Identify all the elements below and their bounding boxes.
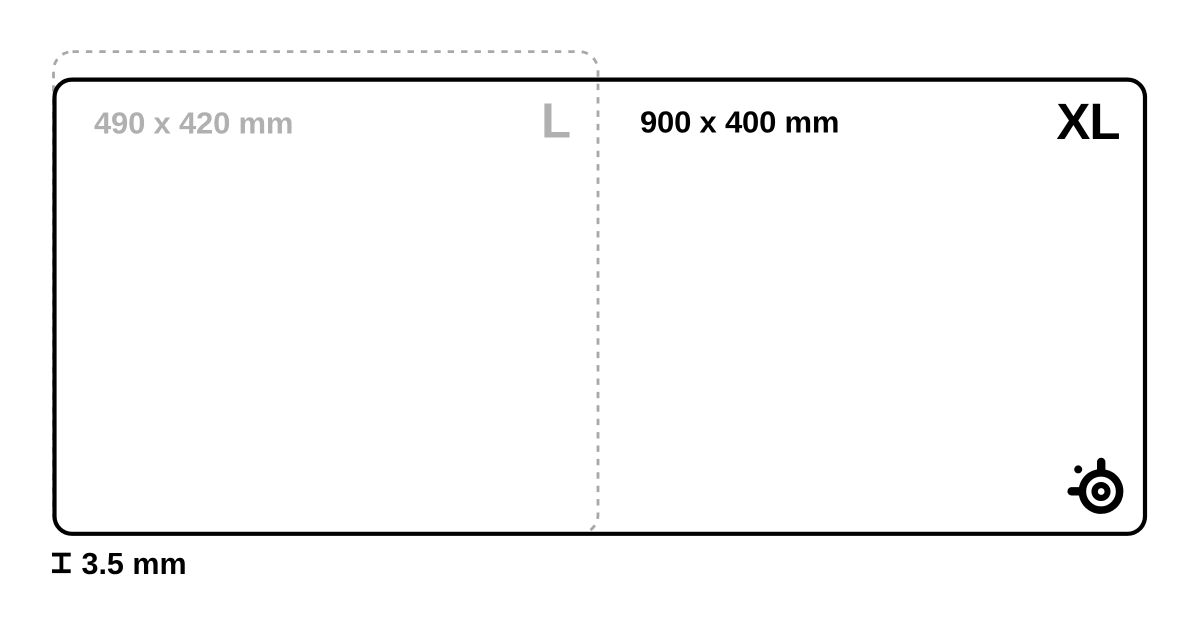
svg-text:3.5 mm: 3.5 mm: [82, 547, 187, 581]
svg-text:L: L: [541, 95, 571, 149]
svg-text:490 x 420 mm: 490 x 420 mm: [94, 106, 293, 141]
svg-text:XL: XL: [1056, 93, 1119, 150]
svg-text:900 x 400 mm: 900 x 400 mm: [640, 105, 839, 140]
